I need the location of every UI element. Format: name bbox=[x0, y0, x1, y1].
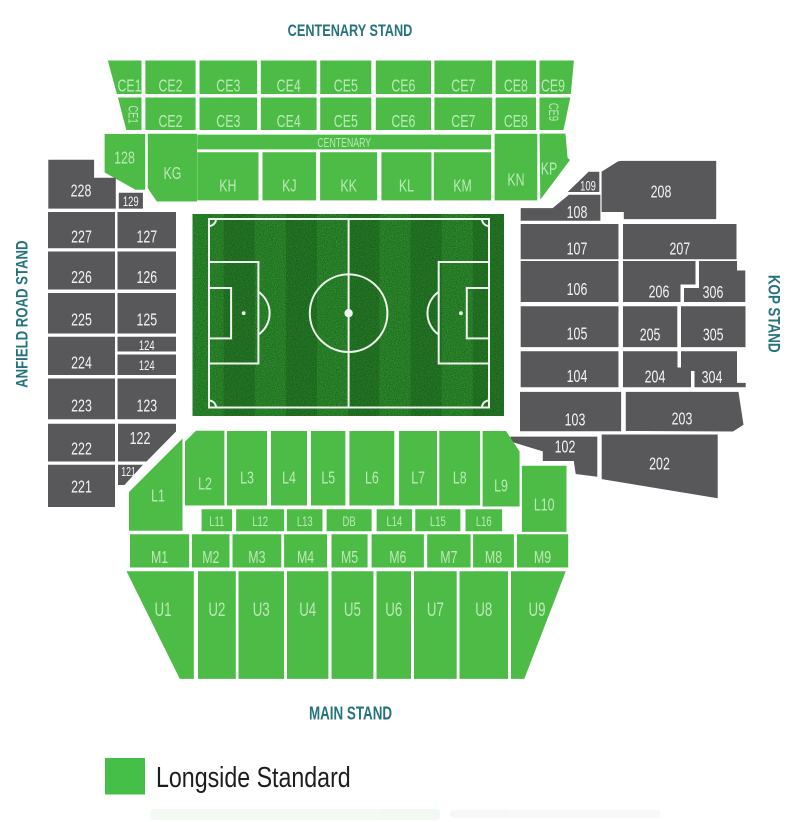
svg-text:L3: L3 bbox=[240, 468, 254, 488]
svg-text:203: 203 bbox=[672, 409, 693, 429]
svg-text:L11: L11 bbox=[209, 514, 224, 529]
svg-text:CE6: CE6 bbox=[391, 76, 415, 96]
svg-text:KP: KP bbox=[541, 159, 558, 179]
svg-text:CE7: CE7 bbox=[451, 76, 475, 96]
svg-text:KOP STAND: KOP STAND bbox=[764, 275, 783, 353]
svg-text:L8: L8 bbox=[453, 468, 467, 488]
svg-text:CE9: CE9 bbox=[546, 103, 561, 121]
svg-text:104: 104 bbox=[567, 367, 588, 387]
svg-text:MAIN STAND: MAIN STAND bbox=[309, 705, 392, 724]
svg-text:M9: M9 bbox=[534, 548, 551, 568]
svg-text:123: 123 bbox=[136, 396, 157, 416]
svg-text:L5: L5 bbox=[321, 468, 335, 488]
svg-text:L13: L13 bbox=[297, 514, 313, 529]
svg-text:KK: KK bbox=[340, 176, 357, 196]
svg-text:207: 207 bbox=[669, 239, 690, 259]
svg-text:KN: KN bbox=[507, 170, 524, 190]
svg-text:CE1: CE1 bbox=[117, 76, 141, 96]
svg-text:M7: M7 bbox=[440, 548, 457, 568]
svg-text:U2: U2 bbox=[208, 600, 225, 621]
svg-text:CE2: CE2 bbox=[158, 76, 182, 96]
svg-text:M8: M8 bbox=[485, 548, 502, 568]
svg-text:124: 124 bbox=[139, 359, 155, 374]
svg-text:107: 107 bbox=[567, 239, 588, 259]
svg-text:U8: U8 bbox=[475, 600, 492, 621]
svg-text:U1: U1 bbox=[155, 600, 172, 621]
svg-text:L14: L14 bbox=[387, 514, 403, 529]
svg-text:L2: L2 bbox=[198, 474, 212, 494]
svg-text:KG: KG bbox=[164, 164, 182, 184]
svg-text:CE8: CE8 bbox=[504, 76, 528, 96]
svg-text:202: 202 bbox=[649, 454, 670, 474]
svg-text:CE2: CE2 bbox=[158, 112, 182, 132]
svg-text:L6: L6 bbox=[365, 468, 379, 488]
svg-text:U4: U4 bbox=[299, 600, 316, 621]
svg-text:Longside Standard: Longside Standard bbox=[156, 760, 351, 793]
svg-text:KM: KM bbox=[453, 176, 472, 196]
svg-text:CE9: CE9 bbox=[541, 76, 565, 96]
svg-text:129: 129 bbox=[123, 195, 139, 210]
svg-text:L16: L16 bbox=[476, 514, 492, 529]
svg-text:L15: L15 bbox=[430, 514, 446, 529]
svg-text:U6: U6 bbox=[385, 600, 402, 621]
svg-text:CE4: CE4 bbox=[277, 76, 301, 96]
svg-text:L9: L9 bbox=[494, 476, 508, 496]
svg-text:221: 221 bbox=[71, 477, 92, 497]
svg-text:127: 127 bbox=[136, 227, 157, 247]
svg-text:L10: L10 bbox=[534, 495, 555, 515]
svg-text:205: 205 bbox=[640, 325, 661, 345]
svg-text:ANFIELD ROAD STAND: ANFIELD ROAD STAND bbox=[13, 241, 32, 388]
svg-text:108: 108 bbox=[567, 203, 588, 223]
svg-text:CE1: CE1 bbox=[125, 105, 140, 123]
svg-text:M2: M2 bbox=[202, 548, 219, 568]
svg-text:M3: M3 bbox=[248, 548, 265, 568]
svg-text:208: 208 bbox=[651, 182, 672, 202]
svg-text:U3: U3 bbox=[253, 600, 270, 621]
svg-text:206: 206 bbox=[649, 282, 670, 302]
svg-text:U7: U7 bbox=[427, 600, 444, 621]
svg-text:CE4: CE4 bbox=[277, 112, 301, 132]
svg-text:U9: U9 bbox=[529, 600, 546, 621]
svg-text:KJ: KJ bbox=[282, 176, 296, 196]
svg-text:M5: M5 bbox=[341, 548, 358, 568]
svg-text:125: 125 bbox=[136, 311, 157, 331]
svg-text:109: 109 bbox=[580, 179, 596, 194]
svg-text:U5: U5 bbox=[344, 600, 361, 621]
svg-text:CE3: CE3 bbox=[216, 112, 240, 132]
svg-text:KH: KH bbox=[219, 176, 236, 196]
svg-text:M4: M4 bbox=[297, 548, 315, 568]
svg-text:CE5: CE5 bbox=[334, 76, 358, 96]
svg-text:L1: L1 bbox=[151, 486, 165, 506]
svg-text:CE7: CE7 bbox=[451, 112, 475, 132]
svg-text:CE3: CE3 bbox=[216, 76, 240, 96]
svg-text:M1: M1 bbox=[151, 548, 168, 568]
svg-text:106: 106 bbox=[567, 280, 588, 300]
svg-text:M6: M6 bbox=[389, 548, 406, 568]
svg-text:225: 225 bbox=[71, 311, 92, 331]
svg-text:L12: L12 bbox=[252, 514, 268, 529]
svg-text:222: 222 bbox=[71, 439, 92, 459]
svg-text:CE6: CE6 bbox=[391, 112, 415, 132]
svg-text:223: 223 bbox=[71, 396, 92, 416]
svg-text:105: 105 bbox=[567, 324, 588, 344]
svg-text:204: 204 bbox=[645, 367, 666, 387]
svg-text:304: 304 bbox=[702, 368, 723, 388]
svg-text:306: 306 bbox=[703, 283, 724, 303]
svg-text:CE5: CE5 bbox=[334, 112, 358, 132]
svg-text:103: 103 bbox=[565, 410, 586, 430]
svg-text:CE8: CE8 bbox=[504, 112, 528, 132]
svg-text:L4: L4 bbox=[282, 468, 296, 488]
svg-text:CENTENARY: CENTENARY bbox=[317, 136, 371, 150]
svg-text:227: 227 bbox=[71, 227, 92, 247]
svg-text:126: 126 bbox=[136, 268, 157, 288]
svg-text:128: 128 bbox=[114, 148, 135, 168]
svg-text:224: 224 bbox=[71, 353, 92, 373]
svg-text:DB: DB bbox=[343, 514, 356, 529]
svg-text:102: 102 bbox=[555, 437, 576, 457]
svg-text:CENTENARY STAND: CENTENARY STAND bbox=[288, 22, 413, 40]
svg-text:305: 305 bbox=[703, 325, 724, 345]
svg-text:228: 228 bbox=[71, 181, 92, 201]
svg-text:KL: KL bbox=[399, 176, 414, 196]
svg-text:L7: L7 bbox=[411, 468, 425, 488]
svg-text:124: 124 bbox=[139, 338, 155, 353]
svg-text:122: 122 bbox=[130, 429, 151, 449]
svg-text:226: 226 bbox=[71, 268, 92, 288]
svg-text:121: 121 bbox=[121, 466, 136, 480]
